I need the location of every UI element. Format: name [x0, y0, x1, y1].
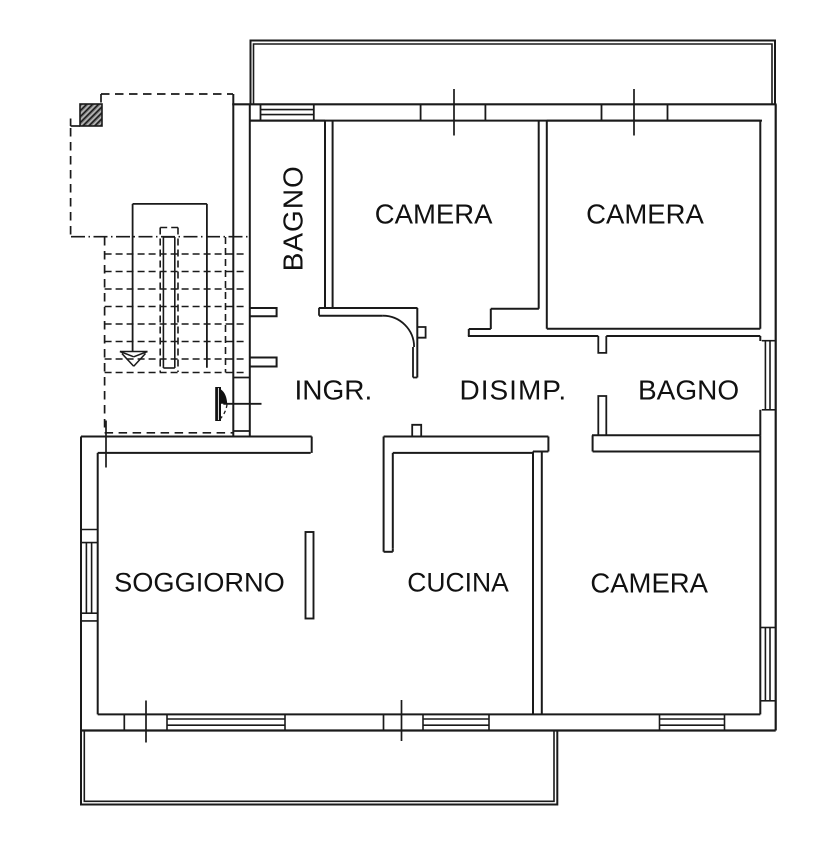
svg-text:CAMERA: CAMERA — [590, 568, 708, 599]
svg-text:CAMERA: CAMERA — [586, 198, 704, 229]
svg-text:CUCINA: CUCINA — [407, 568, 509, 598]
svg-text:DISIMP.: DISIMP. — [460, 374, 568, 405]
svg-text:BAGNO: BAGNO — [278, 165, 309, 271]
svg-text:CAMERA: CAMERA — [375, 198, 493, 229]
svg-text:BAGNO: BAGNO — [638, 374, 739, 405]
svg-text:INGR.: INGR. — [295, 374, 373, 405]
svg-text:SOGGIORNO: SOGGIORNO — [114, 567, 285, 598]
